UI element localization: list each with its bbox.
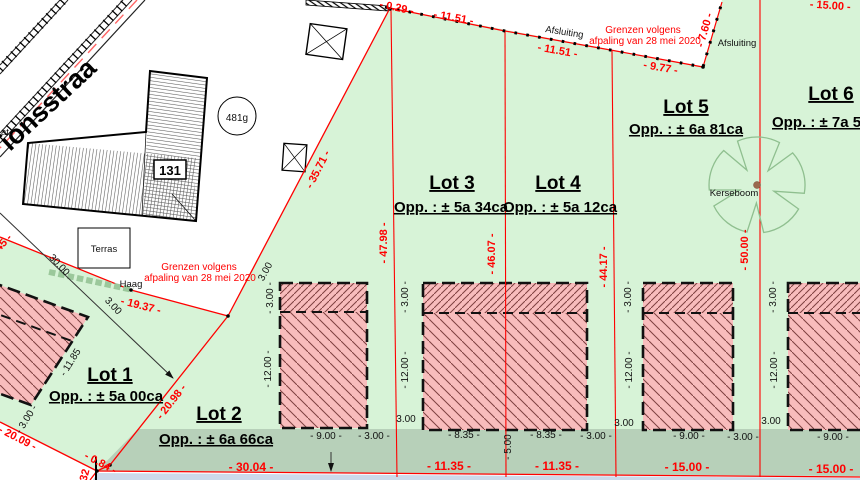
dim-b-depth: - 12.00 -	[400, 351, 411, 388]
tree-label: Kerseboom	[710, 188, 759, 199]
building-lot3-lot4	[423, 283, 587, 430]
dim-d-front: - 3.00 -	[768, 281, 779, 313]
lot1-area: Opp. : ± 5a 00ca	[49, 388, 164, 405]
dim-50.00: - 50.00 -	[739, 229, 751, 270]
dim-c-gap-right: - 3.00 -	[727, 432, 759, 443]
dim-44.17: - 44.17 -	[598, 246, 610, 287]
survey-note-top-1: Grenzen volgens	[605, 25, 681, 36]
lot3-title: Lot 3	[429, 173, 474, 194]
dim-b-front: - 3.00 -	[400, 281, 411, 313]
dim-15.00-b: - 15.00 -	[809, 462, 854, 476]
lot4-area: Opp. : ± 5a 12ca	[503, 199, 618, 216]
hedge-label: Haag	[120, 279, 143, 290]
dim-46.07: - 46.07 -	[486, 233, 498, 274]
dim-a-depth: - 12.00 -	[263, 350, 274, 387]
survey-note-top-2: afpaling van 28 mei 2020	[589, 36, 701, 47]
lot6-title: Lot 6	[808, 84, 853, 105]
dim-a-gap-right: - 3.00 -	[358, 431, 390, 442]
dim-b-gap-right: - 3.00 -	[580, 431, 612, 442]
building-lot6	[788, 283, 860, 430]
annex-shed-top	[306, 24, 347, 60]
parcel-id: 481g	[226, 113, 248, 124]
curb-band	[306, 0, 388, 11]
lot6-area: Opp. : ± 7a 5	[772, 114, 860, 131]
dim-32-partial: 32	[78, 468, 93, 480]
dim-30.04: - 30.04 -	[229, 460, 274, 474]
dim-b-mid: - 5.00 -	[503, 428, 514, 460]
building-lot5	[643, 283, 733, 430]
survey-note-left-1: Grenzen volgens	[161, 262, 237, 273]
dim-a-width: - 9.00 -	[310, 431, 342, 442]
dim-c-depth: - 12.00 -	[624, 351, 635, 388]
dim-b-gap: 3.00	[396, 414, 416, 425]
dim-d-width: - 9.00 -	[817, 432, 849, 443]
dim-c-gap: 3.00	[614, 418, 634, 429]
survey-note-left-2: afpaling van 28 mei 2020	[144, 273, 256, 284]
dim-15.00-a: - 15.00 -	[665, 460, 710, 474]
cadastral-subdivision-plan: ionsstraa at. 131 481g Terras	[0, 0, 860, 480]
lot4-title: Lot 4	[535, 173, 581, 194]
terrace-label: Terras	[91, 244, 118, 255]
dim-b-width2: - 8.35 -	[530, 430, 562, 441]
dim-d-depth: - 12.00 -	[769, 351, 780, 388]
annex-shed-middle	[282, 143, 307, 172]
street-name-left-fragment: at.	[1, 127, 12, 138]
dim-b-width1: - 8.35 -	[448, 430, 480, 441]
house-number: 131	[159, 163, 181, 178]
dim-11.35-a: - 11.35 -	[427, 459, 471, 473]
lot3-area: Opp. : ± 5a 34ca	[394, 199, 509, 216]
lot5-area: Opp. : ± 6a 81ca	[629, 121, 744, 138]
dim-11.35-b: - 11.35 -	[535, 459, 579, 473]
lot2-area: Opp. : ± 6a 66ca	[159, 431, 274, 448]
lot5-title: Lot 5	[663, 97, 709, 118]
fence-label-right: Afsluiting	[718, 38, 757, 49]
lot1-title: Lot 1	[87, 365, 133, 386]
dim-d-gap: 3.00	[761, 416, 781, 427]
dim-c-width: - 9.00 -	[673, 431, 705, 442]
building-lot2	[280, 283, 367, 428]
lot2-title: Lot 2	[196, 404, 241, 425]
dim-c-front: - 3.00 -	[623, 281, 634, 313]
dim-a-front: - 3.00 -	[265, 282, 276, 314]
dim-47.98: - 47.98 -	[378, 222, 390, 263]
